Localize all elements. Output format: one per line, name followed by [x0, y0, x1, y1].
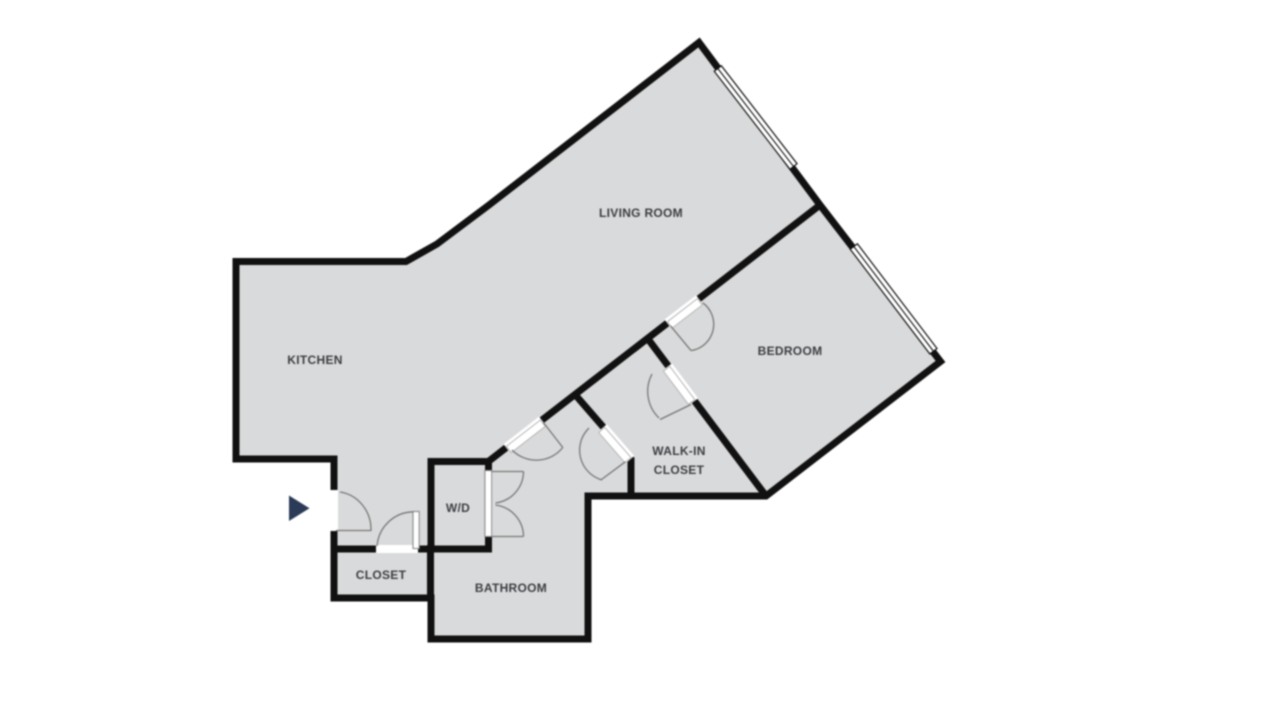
svg-text:BATHROOM: BATHROOM [475, 581, 547, 595]
svg-text:W/D: W/D [446, 501, 470, 515]
svg-text:CLOSET: CLOSET [654, 463, 705, 477]
svg-text:WALK-IN: WALK-IN [652, 444, 705, 458]
svg-text:LIVING ROOM: LIVING ROOM [599, 206, 683, 220]
svg-text:BEDROOM: BEDROOM [758, 344, 823, 358]
svg-text:CLOSET: CLOSET [356, 568, 407, 582]
svg-text:KITCHEN: KITCHEN [287, 353, 342, 367]
